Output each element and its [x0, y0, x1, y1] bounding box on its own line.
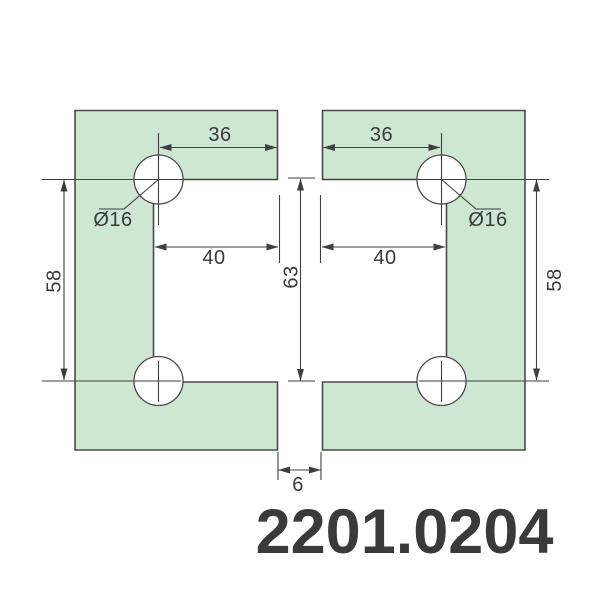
- arrowhead: [297, 369, 304, 381]
- dim-58-left: 58: [44, 180, 68, 381]
- arrowhead: [309, 467, 321, 474]
- dim-6-gap: 6: [278, 452, 321, 496]
- arrowhead: [155, 244, 167, 251]
- dim-40-right: 40: [321, 195, 446, 269]
- arrowhead: [267, 244, 279, 251]
- arrowhead: [533, 180, 540, 192]
- left-plate: [75, 111, 278, 451]
- dim-40-right-label: 40: [373, 247, 396, 269]
- dim-58-right: 58: [533, 180, 566, 381]
- dim-36-left-label: 36: [208, 124, 231, 146]
- technical-drawing: 36 36 Ø16 Ø16 40 40 58: [0, 0, 600, 600]
- dim-63-label: 63: [281, 265, 303, 288]
- dim-40-left: 40: [155, 195, 280, 269]
- arrowhead: [61, 369, 68, 381]
- arrowhead: [297, 179, 304, 191]
- dim-36-right-label: 36: [370, 124, 393, 146]
- right-plate: [323, 111, 526, 451]
- arrowhead: [322, 244, 334, 251]
- arrowhead: [434, 244, 446, 251]
- dim-58-right-label: 58: [544, 268, 566, 291]
- product-code: 2201.0204: [256, 497, 554, 567]
- dim-40-left-label: 40: [202, 247, 225, 269]
- arrowhead: [533, 369, 540, 381]
- dia-right-label: Ø16: [468, 209, 507, 231]
- arrowhead: [61, 180, 68, 192]
- arrowhead: [278, 467, 290, 474]
- dim-58-left-label: 58: [44, 269, 66, 292]
- dim-6-label: 6: [292, 474, 304, 496]
- dia-left-label: Ø16: [93, 209, 132, 231]
- dim-63-center: 63: [281, 178, 316, 381]
